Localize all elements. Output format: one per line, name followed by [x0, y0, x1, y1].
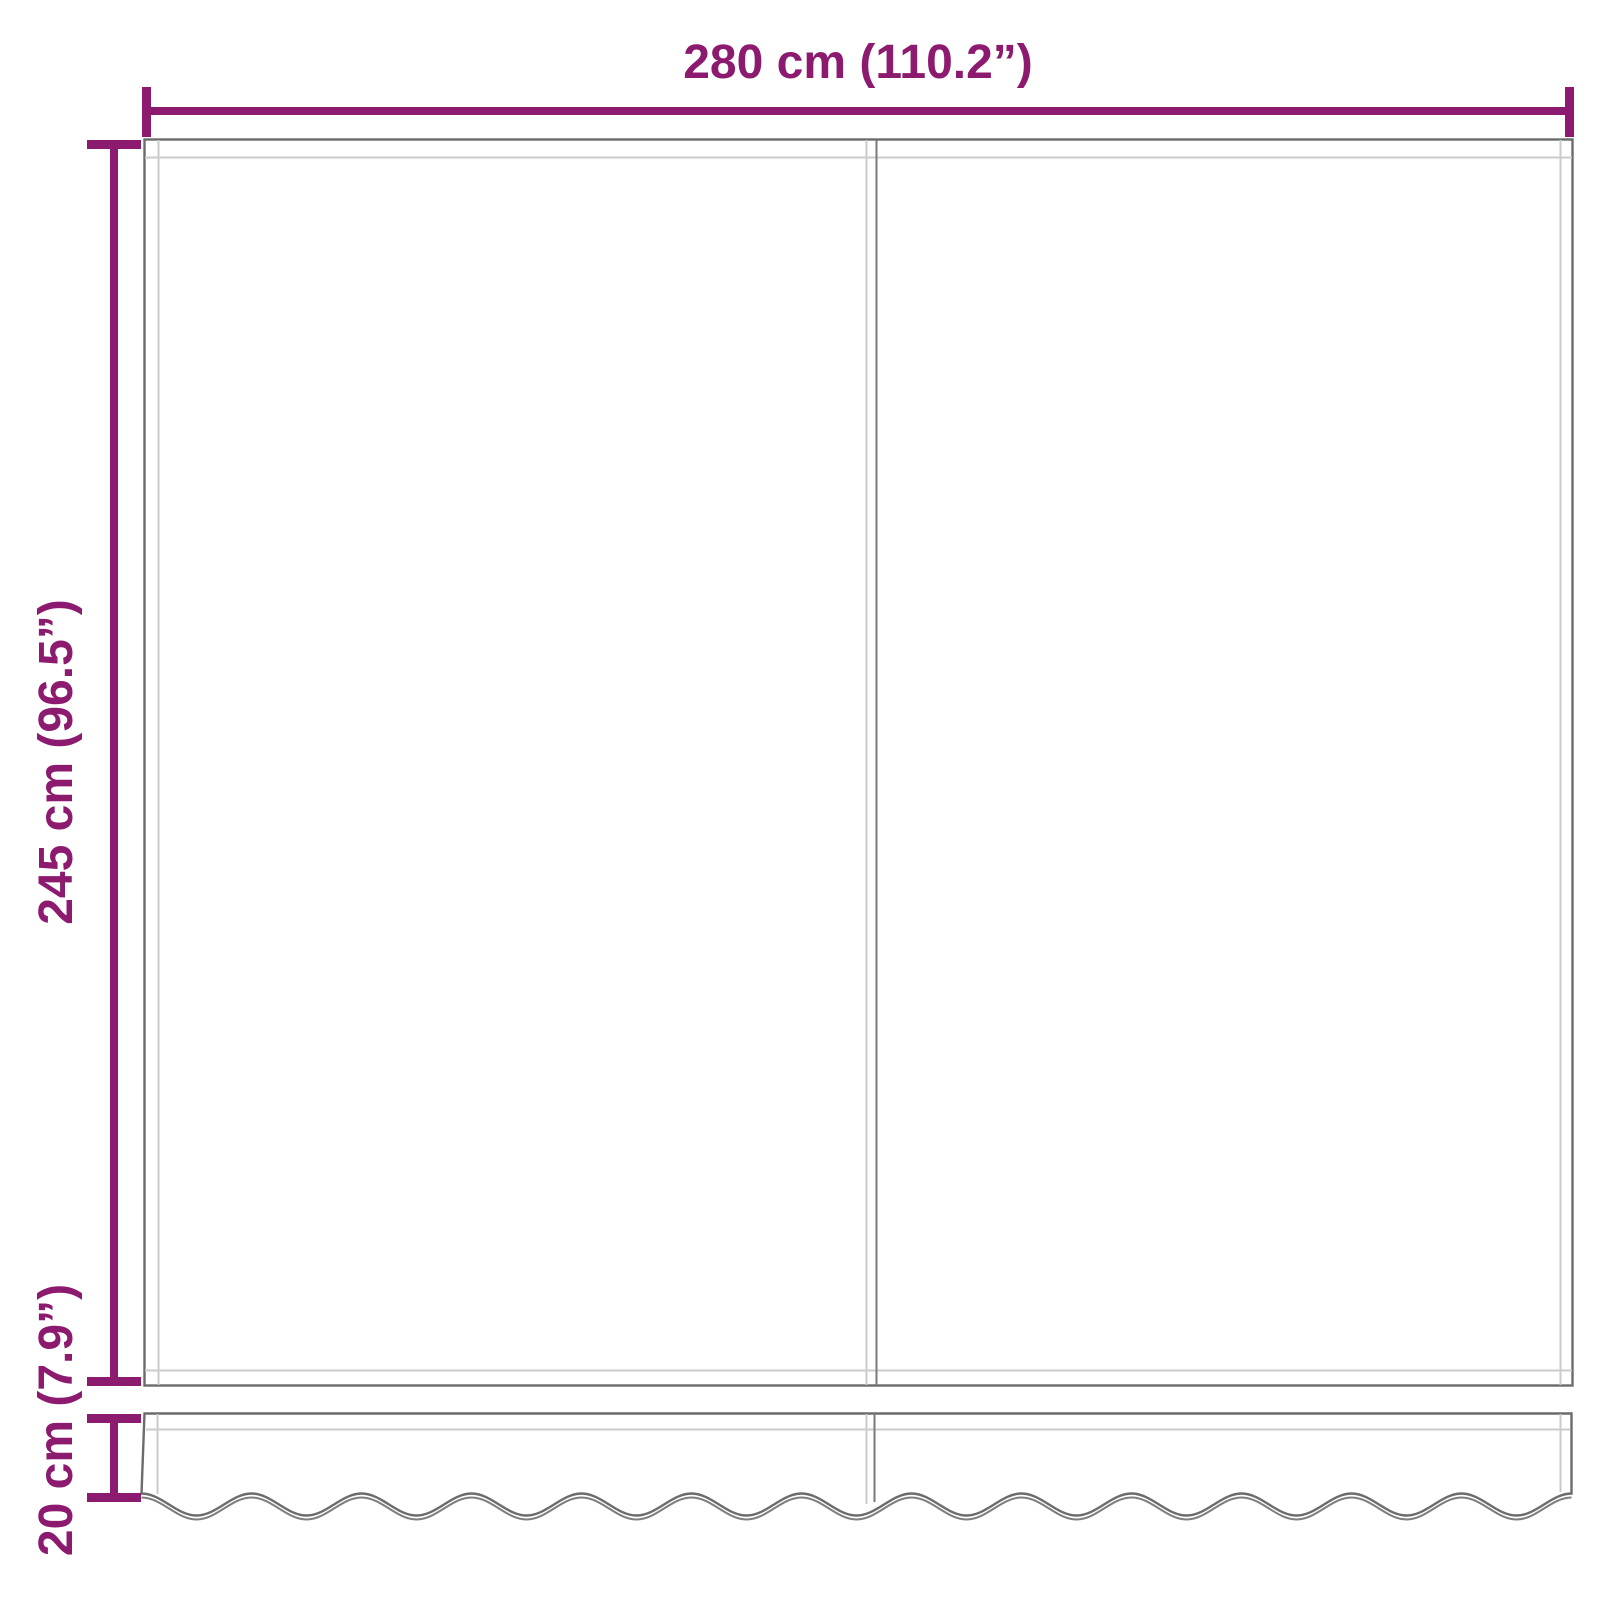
valance-dimension-line — [110, 1422, 118, 1493]
awning-canopy-panel — [145, 140, 1573, 1386]
valance-dimension-label: 20 cm (7.9”) — [33, 1284, 81, 1556]
height-dimension-cap-top — [87, 140, 141, 149]
width-dimension-cap-right — [1565, 87, 1574, 137]
width-dimension-cap-left — [142, 87, 151, 137]
height-dimension-cap-bottom — [87, 1377, 141, 1386]
valance-dimension-cap-bottom — [87, 1493, 141, 1502]
height-dimension-line — [110, 144, 118, 1381]
width-dimension-label: 280 cm (110.2”) — [683, 39, 1033, 87]
diagram-canvas — [0, 0, 1600, 1600]
valance-dimension-cap-top — [87, 1414, 141, 1423]
height-dimension-label: 245 cm (96.5”) — [33, 599, 81, 925]
width-dimension-line — [146, 107, 1569, 115]
dimension-diagram: 280 cm (110.2”) 245 cm (96.5”) 20 cm (7.… — [0, 0, 1600, 1600]
